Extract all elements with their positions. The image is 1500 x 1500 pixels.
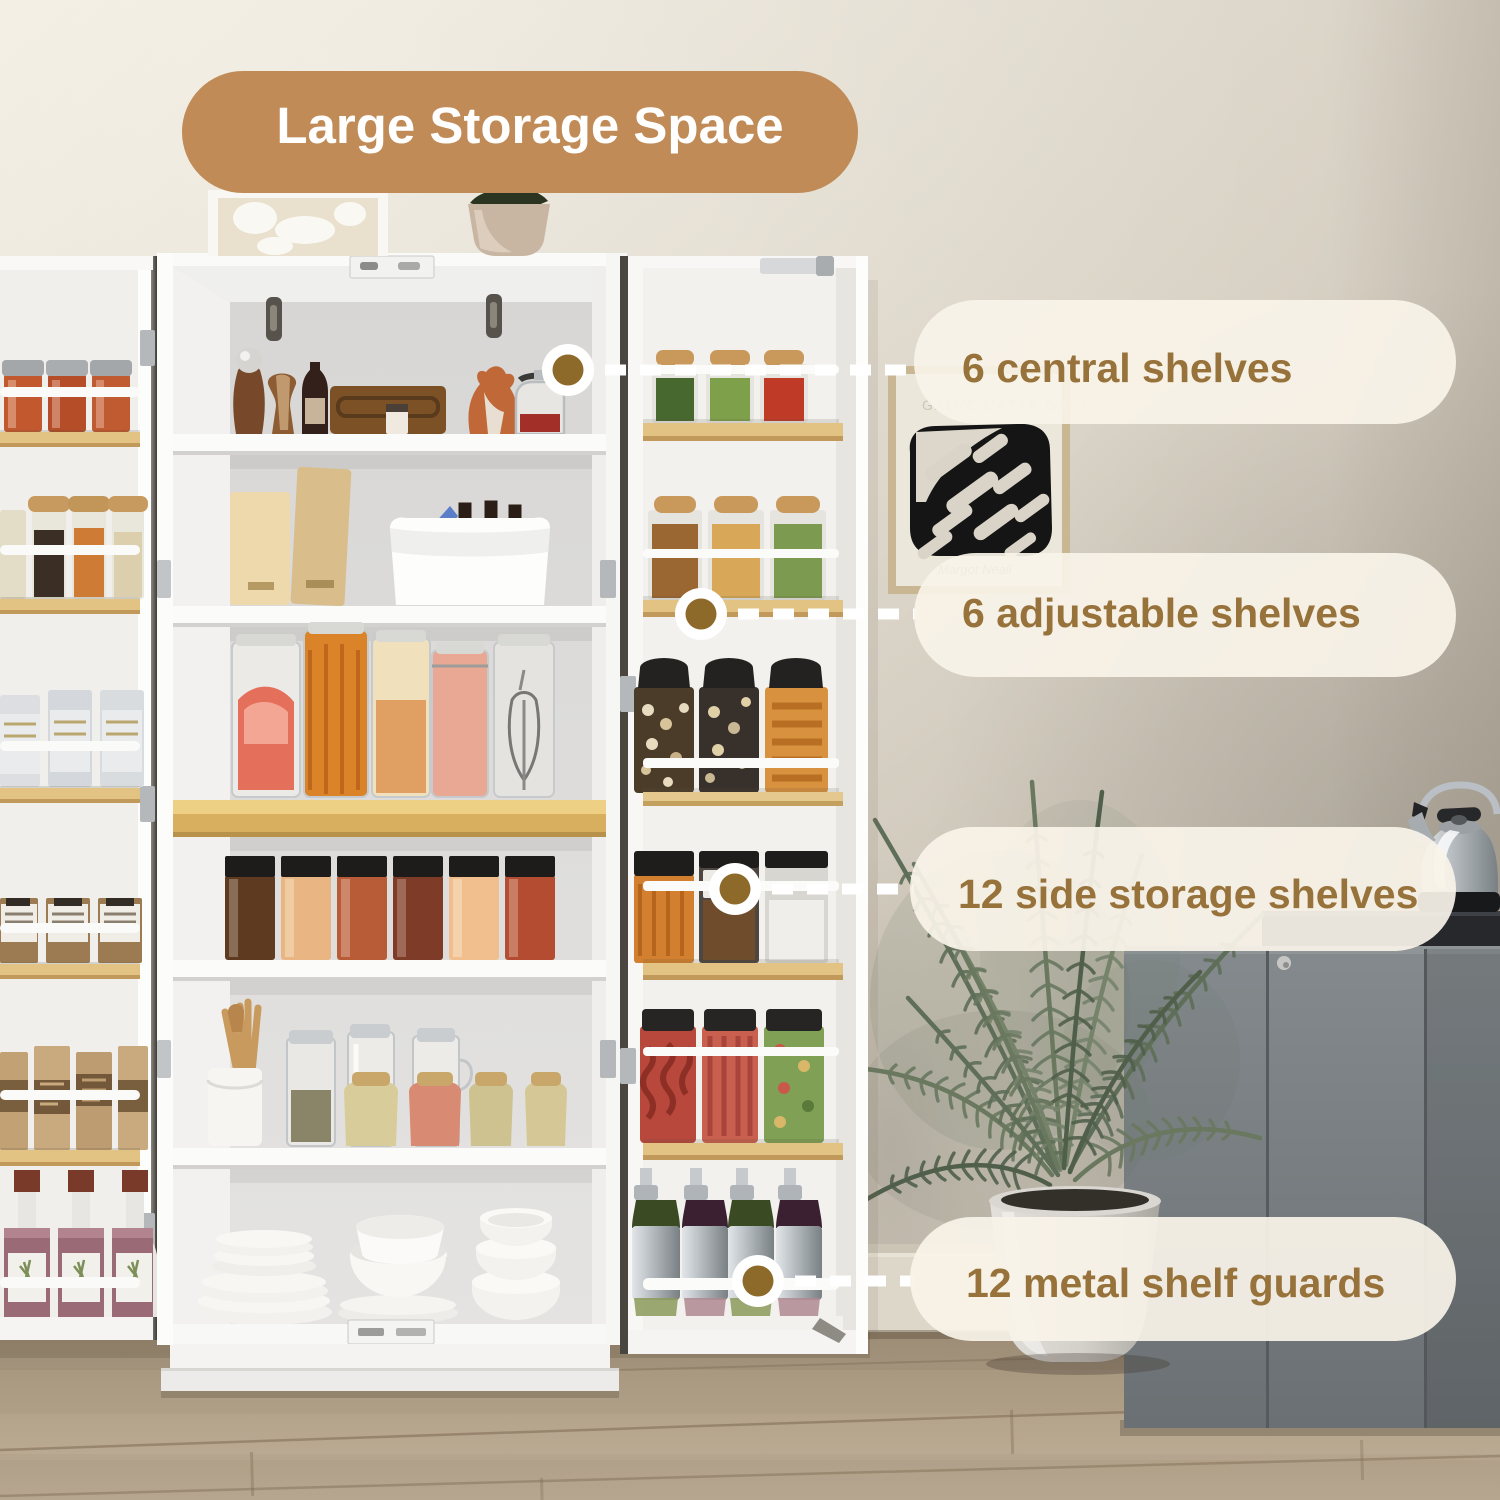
svg-text:Large Storage Space: Large Storage Space [276,97,783,154]
svg-text:12 side storage shelves: 12 side storage shelves [958,871,1418,917]
svg-text:6 central shelves: 6 central shelves [962,345,1292,391]
svg-text:6 adjustable shelves: 6 adjustable shelves [962,590,1361,636]
svg-text:12 metal shelf guards: 12 metal shelf guards [966,1260,1385,1306]
